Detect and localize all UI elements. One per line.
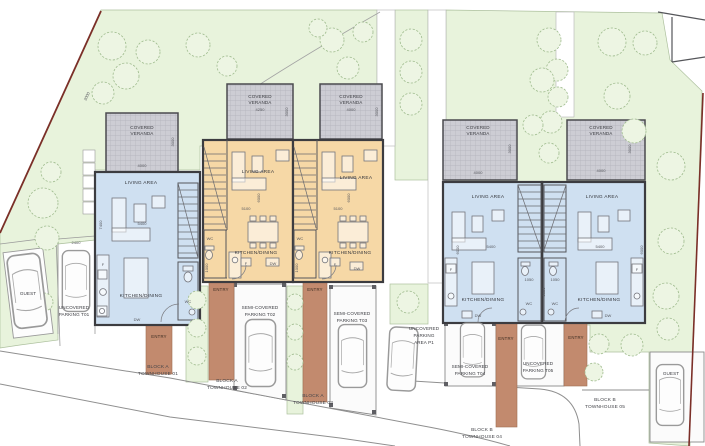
kitchen-label-t05: KITCHEN/DINING	[578, 297, 621, 303]
car-icon	[338, 325, 366, 388]
parking-label-t03: PARKING T03	[337, 318, 368, 323]
parking-label-t01: UNCOVERED	[59, 305, 90, 310]
parking-label-t04: SEMI-COVERED	[452, 364, 489, 369]
depth-dim-t01: 7400	[98, 220, 103, 230]
wc-label-t03: WC	[297, 236, 304, 241]
p1-label: PARKING	[413, 333, 434, 338]
parking-label-t02: PARKING T02	[245, 312, 276, 317]
dishwasher-label-t01: DW	[134, 317, 141, 322]
depth-dim-t02: 6000	[256, 193, 261, 203]
veranda-depth-dim-t01: 3000	[170, 137, 175, 147]
car-icon	[245, 320, 275, 387]
wc-dim-t02: 1000	[204, 263, 209, 273]
kitchen-label-t04: KITCHEN/DINING	[462, 297, 505, 303]
entry-label-t05: ENTRY	[568, 335, 584, 340]
entry-path-t05	[564, 323, 587, 386]
living-label-t02: LIVING AREA	[242, 169, 275, 175]
width-dim-t02: 5100	[242, 206, 252, 211]
block-label-t04: TOWNHOUSE 04	[462, 434, 502, 440]
entry-label-t04: ENTRY	[498, 336, 514, 341]
wc-dim-t04: 1050	[525, 277, 535, 282]
veranda-width-dim-t04: 4000	[474, 170, 484, 175]
kitchen-label-t01: KITCHEN/DINING	[120, 293, 163, 299]
guest-right-label: GUEST	[663, 371, 679, 376]
entry-label-t01: ENTRY	[151, 334, 167, 339]
wc-label-t02: WC	[207, 236, 214, 241]
parking-label-t04: PARKING T04	[455, 371, 486, 376]
veranda-width-dim-t01: 4000	[138, 163, 148, 168]
wc-label-t01: WC	[185, 299, 192, 304]
veranda-depth-dim-t05: 3000	[627, 144, 632, 154]
width-dim-t03: 5100	[334, 206, 344, 211]
wc-dim-t05: 1050	[551, 277, 561, 282]
veranda-label-t02: VERANDA	[249, 100, 273, 105]
width-dim-t04: 5400	[487, 244, 497, 249]
wc-label-t05: WC	[552, 301, 559, 306]
block-label-t03: TOWNHOUSE 03	[293, 400, 333, 406]
entry-path-t03	[303, 282, 327, 402]
block-label-t05: TOWNHOUSE 05	[585, 404, 625, 410]
lot-width-dim: 2400	[72, 240, 82, 245]
veranda-width-dim-t02: 4250	[256, 107, 266, 112]
parking-label-t02: SEMI-COVERED	[242, 305, 279, 310]
veranda-label-t05: COVERED	[589, 125, 613, 130]
veranda-label-t02: COVERED	[248, 94, 272, 99]
parking-label-t03: SEMI-COVERED	[334, 311, 371, 316]
guest-left-label: GUEST	[20, 291, 36, 296]
p1-label: UNCOVERED	[409, 326, 440, 331]
parking-label-t01: PARKING T01	[59, 312, 90, 317]
block-label-t04: BLOCK B	[471, 427, 493, 433]
block-label-t01: BLOCK A	[147, 364, 169, 370]
veranda-label-t03: VERANDA	[340, 100, 364, 105]
dishwasher-label-t05: DW	[605, 313, 612, 318]
living-label-t01: LIVING AREA	[125, 180, 158, 186]
parking-label-t05: UNCOVERED	[523, 361, 554, 366]
width-dim-t05: 5400	[596, 244, 606, 249]
p1-label: AREA P1	[414, 340, 434, 345]
veranda-label-t03: COVERED	[339, 94, 363, 99]
veranda-depth-dim-t02: 3000	[284, 107, 289, 117]
veranda-label-t01: COVERED	[130, 125, 154, 130]
block-label-t01: TOWNHOUSE 01	[138, 371, 178, 377]
veranda-depth-dim-t03: 3000	[374, 107, 379, 117]
dishwasher-label-t04: DW	[475, 313, 482, 318]
kitchen-label-t02: KITCHEN/DINING	[235, 250, 278, 256]
garden-steps	[83, 150, 95, 214]
veranda-label-t01: VERANDA	[131, 131, 155, 136]
veranda-depth-dim-t04: 3000	[507, 144, 512, 154]
depth-dim-t05: 6000	[639, 245, 644, 255]
veranda-width-dim-t03: 4000	[347, 107, 357, 112]
dishwasher-label-t03: DW	[354, 266, 361, 271]
parking-label-t05: PARKING T05	[523, 368, 554, 373]
block-label-t05: BLOCK B	[594, 397, 616, 403]
site-plan: 3000 2400 GUEST GUEST UNCOVERED PARKING …	[0, 0, 705, 446]
block-label-t03: BLOCK A	[302, 393, 324, 399]
dishwasher-label-t02: DW	[270, 261, 277, 266]
veranda-label-t04: COVERED	[466, 125, 490, 130]
living-label-t05: LIVING AREA	[586, 194, 619, 200]
kitchen-label-t03: KITCHEN/DINING	[329, 250, 372, 256]
veranda-label-t05: VERANDA	[590, 131, 614, 136]
living-label-t04: LIVING AREA	[472, 194, 505, 200]
depth-dim-t04: 6000	[455, 245, 460, 255]
car-icon	[62, 251, 89, 312]
wc-label-t04: WC	[526, 301, 533, 306]
entry-path-t02	[209, 282, 234, 380]
block-label-t02: TOWNHOUSE 02	[207, 385, 247, 391]
wc-depth-dim-t04: 3050	[541, 287, 546, 297]
entry-label-t03: ENTRY	[307, 287, 323, 292]
living-label-t03: LIVING AREA	[340, 175, 373, 181]
site-plan-svg: 3000 2400 GUEST GUEST UNCOVERED PARKING …	[0, 0, 705, 446]
veranda-width-dim-t05: 4000	[597, 168, 607, 173]
veranda-label-t04: VERANDA	[467, 131, 491, 136]
width-dim-t01: 5400	[138, 221, 148, 226]
wc-dim-t03: 1000	[294, 263, 299, 273]
depth-dim-t03: 6000	[346, 193, 351, 203]
block-label-t02: BLOCK A	[216, 378, 238, 384]
entry-label-t02: ENTRY	[213, 287, 229, 292]
